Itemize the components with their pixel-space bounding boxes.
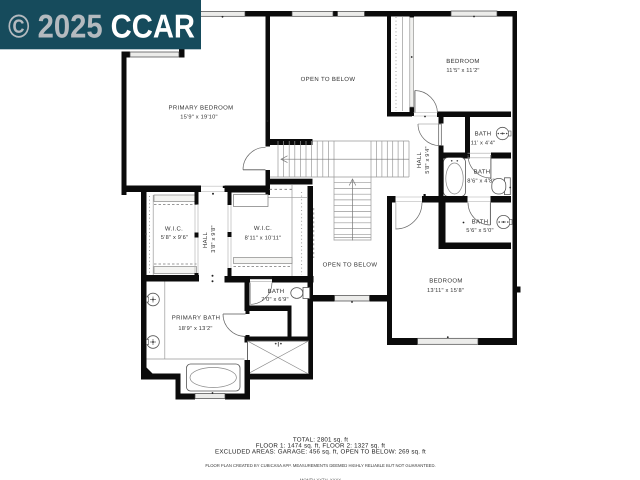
svg-text:15’9" x 19’10": 15’9" x 19’10" [180, 115, 218, 121]
svg-text:EXCLUDED AREAS: GARAGE: 456 sq: EXCLUDED AREAS: GARAGE: 456 sq. ft, OPEN… [215, 448, 426, 455]
svg-text:13’11" x 15’8": 13’11" x 15’8" [427, 288, 464, 294]
svg-text:BATH: BATH [268, 288, 285, 295]
svg-text:HALL: HALL [202, 232, 209, 249]
svg-text:W.I.C.: W.I.C. [254, 225, 272, 232]
svg-text:© 2025 CCAR: © 2025 CCAR [8, 8, 195, 45]
svg-text:BATH: BATH [475, 130, 492, 137]
svg-text:BATH: BATH [472, 218, 489, 225]
svg-text:8’6" x 4’8": 8’6" x 4’8" [467, 178, 494, 184]
svg-text:W.I.C.: W.I.C. [165, 226, 183, 233]
svg-text:PRIMARY BEDROOM: PRIMARY BEDROOM [168, 105, 233, 112]
svg-text:5’8" x 9’6": 5’8" x 9’6" [161, 235, 188, 241]
svg-text:18’9" x 13’2": 18’9" x 13’2" [178, 326, 212, 332]
svg-text:7’0" x 6’9": 7’0" x 6’9" [261, 297, 288, 303]
svg-text:OPEN TO BELOW: OPEN TO BELOW [323, 261, 378, 268]
svg-text:OPEN TO BELOW: OPEN TO BELOW [301, 76, 356, 83]
svg-text:BEDROOM: BEDROOM [429, 278, 462, 285]
svg-text:PRIMARY BATH: PRIMARY BATH [172, 314, 221, 321]
svg-text:BATH: BATH [474, 168, 491, 175]
svg-text:HALL: HALL [416, 152, 423, 169]
svg-text:5’8" x 9’4": 5’8" x 9’4" [425, 146, 431, 173]
svg-text:BEDROOM: BEDROOM [446, 58, 479, 65]
svg-text:11’5" x 11’2": 11’5" x 11’2" [446, 68, 479, 74]
svg-text:FLOOR PLAN CREATED BY CUBICASA: FLOOR PLAN CREATED BY CUBICASA APP. MEAS… [205, 463, 435, 468]
svg-text:8’11" x 10’11": 8’11" x 10’11" [245, 235, 282, 241]
svg-text:11’ x 4’4": 11’ x 4’4" [471, 141, 496, 147]
svg-text:5’6" x 5’0": 5’6" x 5’0" [466, 228, 493, 234]
svg-text:3’8" x 9’8": 3’8" x 9’8" [211, 225, 217, 252]
